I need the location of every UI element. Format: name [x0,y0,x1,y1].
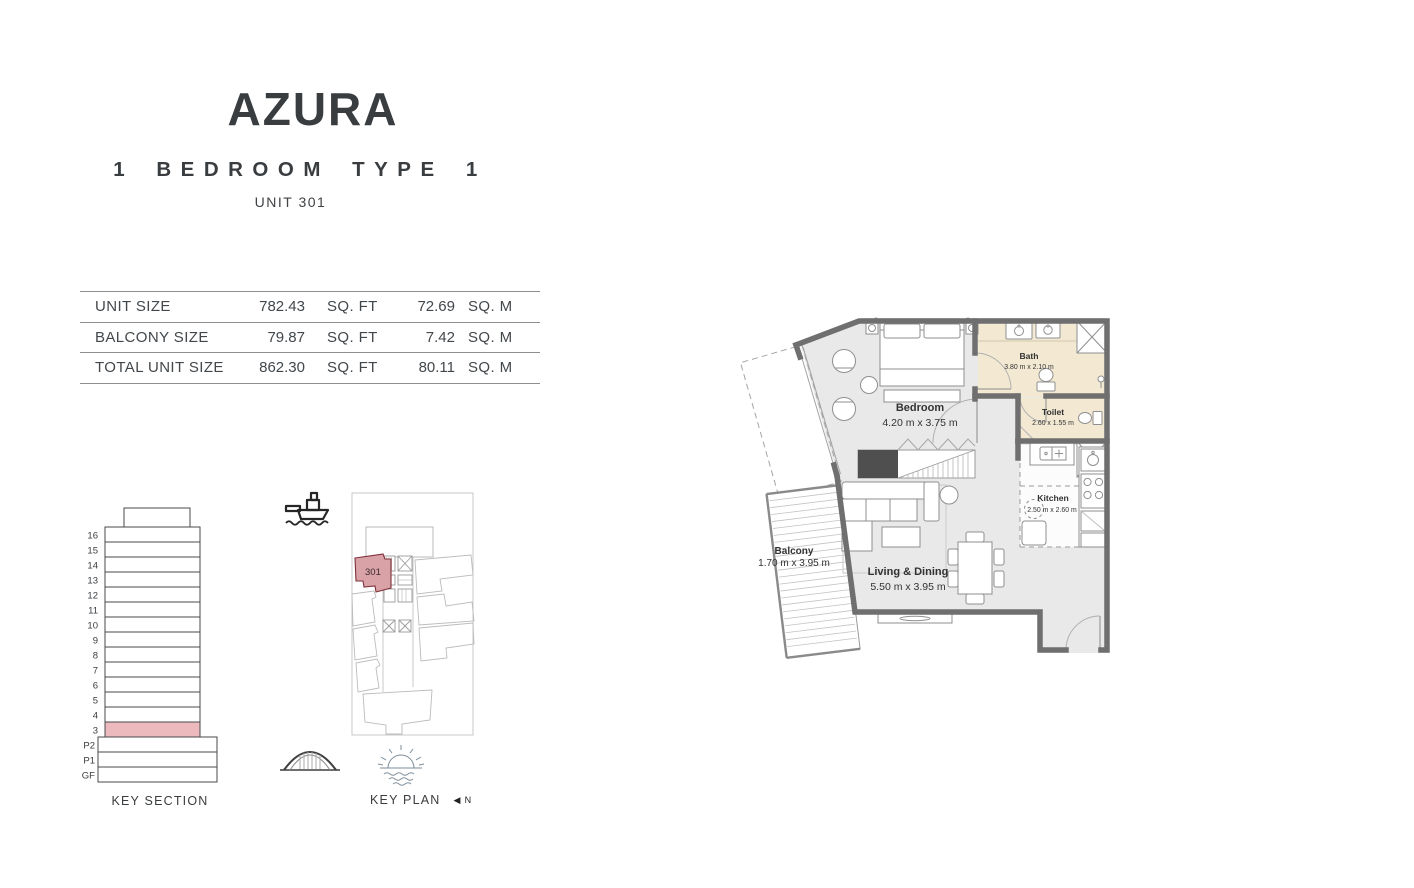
key-plan-caption: KEY PLAN [370,793,441,807]
svg-text:P1: P1 [83,756,95,767]
highlighted-floor-3 [105,722,200,737]
sqft-value: 862.30 [252,353,305,383]
table-row-balcony-size: BALCONY SIZE 79.87 SQ. FT 7.42 SQ. M [80,322,540,353]
svg-text:6: 6 [93,681,98,692]
toilet-dims: 2.60 x 1.55 m [1032,420,1074,427]
sqft-value: 782.43 [252,292,305,322]
svg-text:4: 4 [93,711,98,722]
balcony-label: Balcony [775,546,814,557]
bath-label: Bath [1019,351,1038,361]
kitchen-dims: 2.50 m x 2.60 m [1027,507,1077,514]
bedroom-label: Bedroom [896,402,945,414]
sqm-value: 80.11 [397,353,455,383]
table-row-total-size: TOTAL UNIT SIZE 862.30 SQ. FT 80.11 SQ. … [80,352,540,383]
key-plan-caption-row: KEY PLAN ◀ N [341,793,501,807]
svg-text:10: 10 [87,621,98,632]
key-plan-unit-number: 301 [365,567,381,578]
bath-dims: 3.80 m x 2.10 m [1004,364,1054,371]
bridge-icon [280,752,340,770]
svg-text:11: 11 [88,606,98,617]
sqm-value: 72.69 [397,292,455,322]
kitchen-label: Kitchen [1037,493,1069,503]
north-label: N [465,795,473,805]
svg-text:7: 7 [93,666,98,677]
sqm-unit: SQ. M [455,323,540,353]
bedroom-dims: 4.20 m x 3.75 m [882,417,958,429]
svg-text:9: 9 [93,636,98,647]
svg-text:8: 8 [93,651,98,662]
sqft-unit: SQ. FT [305,292,397,322]
north-arrow-icon: ◀ N [454,795,473,806]
row-label: TOTAL UNIT SIZE [80,353,252,383]
toilet-label: Toilet [1042,407,1064,417]
unit-floor-plan: Bedroom 4.20 m x 3.75 m Bath 3.80 m x 2.… [730,295,1130,675]
svg-text:12: 12 [87,591,98,602]
svg-text:13: 13 [87,576,98,587]
unit-size-table: UNIT SIZE 782.43 SQ. FT 72.69 SQ. M BALC… [80,291,540,384]
svg-text:GF: GF [82,771,95,782]
unit-type-subtitle: 1 BEDROOM TYPE 1 [50,158,550,182]
row-label: UNIT SIZE [80,292,252,322]
ship-icon [286,493,328,525]
row-label: BALCONY SIZE [80,323,252,353]
living-dims: 5.50 m x 3.95 m [870,581,946,593]
floorplan-page: AZURA 1 BEDROOM TYPE 1 UNIT 301 UNIT SIZ… [0,0,1414,888]
floor-labels: 16 15 14 13 12 11 10 9 8 7 6 5 4 3 P2 P1… [82,531,98,782]
sqm-value: 7.42 [397,323,455,353]
svg-text:5: 5 [93,696,98,707]
sqm-unit: SQ. M [455,292,540,322]
sqm-unit: SQ. M [455,353,540,383]
svg-text:P2: P2 [83,741,95,752]
svg-text:3: 3 [93,726,98,737]
svg-text:14: 14 [87,561,98,572]
key-section-caption: KEY SECTION [60,794,260,808]
page-title: AZURA [63,82,563,136]
unit-number-label: UNIT 301 [63,194,518,210]
living-label: Living & Dining [868,566,949,578]
svg-text:15: 15 [87,546,98,557]
sqft-unit: SQ. FT [305,353,397,383]
balcony-dims: 1.70 m x 3.95 m [758,558,830,569]
key-plan-diagram: 301 [280,482,480,787]
table-row-unit-size: UNIT SIZE 782.43 SQ. FT 72.69 SQ. M [80,291,540,322]
sqft-value: 79.87 [252,323,305,353]
sqft-unit: SQ. FT [305,323,397,353]
svg-text:16: 16 [87,531,98,542]
sunset-icon [378,745,424,785]
roof-block [124,508,190,527]
key-section-diagram: 16 15 14 13 12 11 10 9 8 7 6 5 4 3 P2 P1… [60,500,240,790]
